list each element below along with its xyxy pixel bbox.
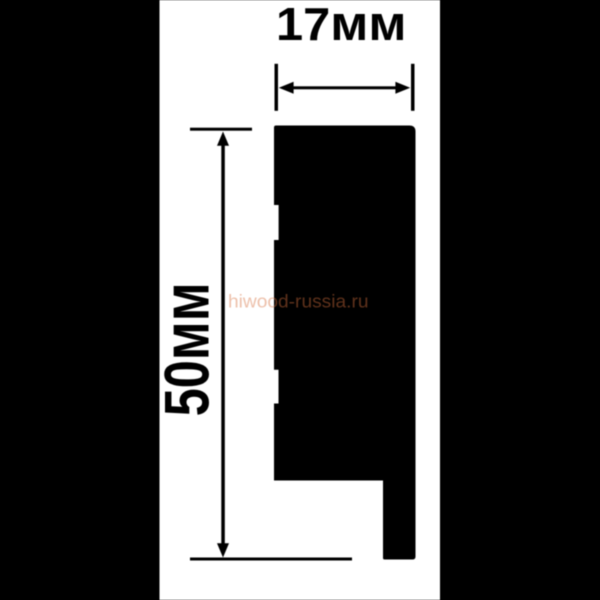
svg-text:17мм: 17мм <box>276 0 407 51</box>
svg-text:50мм: 50мм <box>149 282 223 416</box>
svg-text:hiwood-russia.ru: hiwood-russia.ru <box>228 291 369 312</box>
